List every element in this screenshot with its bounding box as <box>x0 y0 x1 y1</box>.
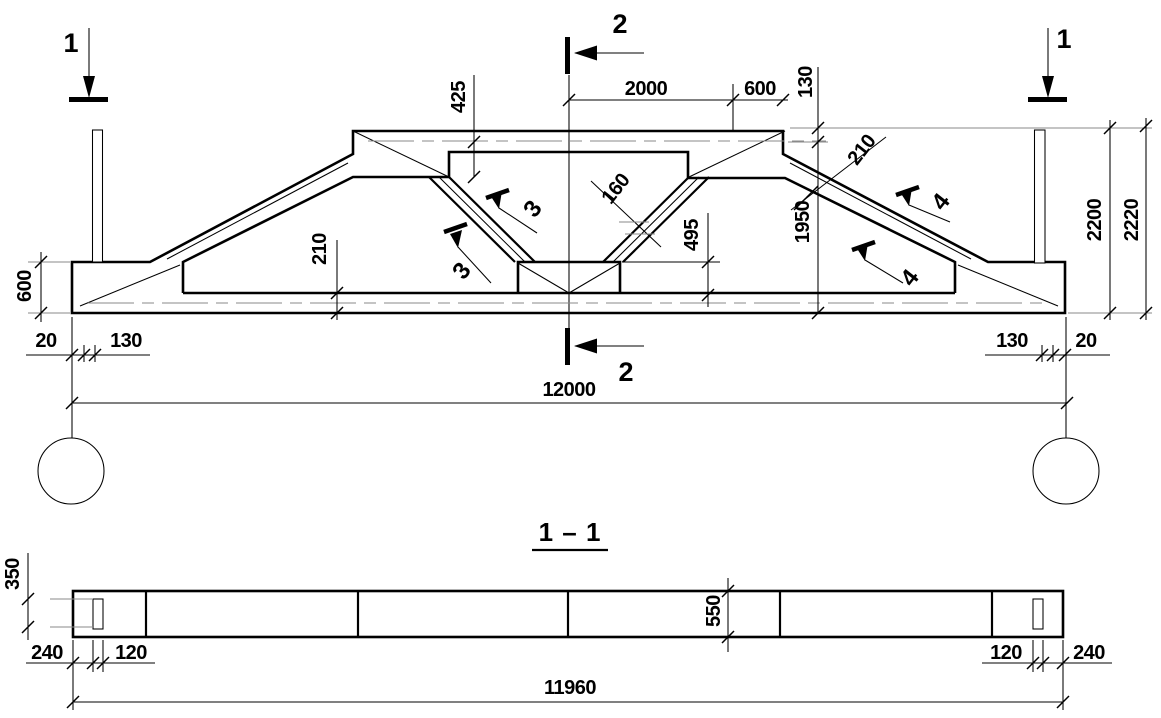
dim-600-left: 600 <box>14 270 36 302</box>
dim-120-left: 120 <box>115 642 147 664</box>
section-marker-1-right: 1 <box>1028 24 1072 100</box>
dim-11960: 11960 <box>544 677 596 699</box>
dim-160: 160 <box>598 169 635 208</box>
section-marker-label: 2 <box>618 357 633 387</box>
elevation-dimension-labels: 425 2000 600 130 210 160 1950 495 2200 2… <box>14 66 1143 401</box>
dim-425: 425 <box>448 81 470 113</box>
section-marker-label: 2 <box>612 9 627 39</box>
right-lifting-post <box>1035 130 1046 263</box>
dim-550: 550 <box>703 595 725 627</box>
section-view-1-1: 1 – 1 350 550 <box>2 517 1112 710</box>
truss-girder-drawing: 1 1 2 2 <box>0 0 1161 718</box>
drawing-sheet: 1 1 2 2 <box>0 0 1161 718</box>
section-marker-1-left: 1 <box>63 28 108 100</box>
axis-bubble-right <box>1033 438 1099 504</box>
left-lifting-post <box>93 130 103 262</box>
flag-label: 4 <box>895 264 925 292</box>
dim-20-left: 20 <box>35 330 57 352</box>
right-lifting-hole <box>1033 599 1043 629</box>
left-corner-diagonal <box>353 131 449 177</box>
detail-flag-4-upper: 4 <box>896 187 956 222</box>
flag-arrow-icon <box>450 230 462 248</box>
left-endblock-diagonal <box>80 265 180 306</box>
dim-210-chord: 210 <box>309 233 331 265</box>
dim-2220: 2220 <box>1121 198 1143 241</box>
dim-20-right: 20 <box>1075 330 1097 352</box>
dim-12000: 12000 <box>542 379 595 401</box>
arrow-down-icon <box>1042 76 1054 98</box>
block-v-line-left <box>518 263 569 293</box>
dim-350: 350 <box>2 558 24 590</box>
dim-130-left: 130 <box>110 330 142 352</box>
arrow-left-icon <box>574 46 597 61</box>
dim-120-right: 120 <box>990 642 1022 664</box>
flag-label: 3 <box>518 195 548 222</box>
right-endblock-diagonal <box>958 265 1058 306</box>
section-title: 1 – 1 <box>539 517 602 547</box>
left-lifting-hole <box>93 599 103 629</box>
dim-240-right: 240 <box>1073 642 1105 664</box>
right-corner-diagonal <box>689 131 785 177</box>
section-marker-label: 1 <box>63 28 78 58</box>
left-strut-centerline <box>439 177 525 262</box>
detail-flag-3-lower: 3 <box>444 224 491 285</box>
dim-2200: 2200 <box>1084 198 1106 241</box>
dim-210-haunch: 210 <box>844 130 881 169</box>
axis-bubble-left <box>38 438 104 504</box>
flag-label: 4 <box>926 188 956 216</box>
dim-130-right: 130 <box>996 330 1028 352</box>
dim-130-top: 130 <box>795 66 817 98</box>
flag-label: 3 <box>447 257 477 284</box>
block-v-line-right <box>569 263 620 293</box>
dim-495: 495 <box>681 219 703 251</box>
dim-1950: 1950 <box>792 200 814 243</box>
centerlines-and-extensions <box>28 128 1152 313</box>
arrow-left-icon <box>574 339 597 354</box>
section-marker-label: 1 <box>1056 24 1071 54</box>
dim-2000: 2000 <box>625 78 668 100</box>
detail-flag-4-lower: 4 <box>852 242 925 292</box>
arrow-down-icon <box>83 76 95 98</box>
dim-600-top: 600 <box>744 78 776 100</box>
section-marker-2-top: 2 <box>568 9 645 74</box>
axis-bubbles <box>38 438 1099 504</box>
dim-240-left: 240 <box>31 642 63 664</box>
detail-flag-3-upper: 3 <box>486 190 548 233</box>
